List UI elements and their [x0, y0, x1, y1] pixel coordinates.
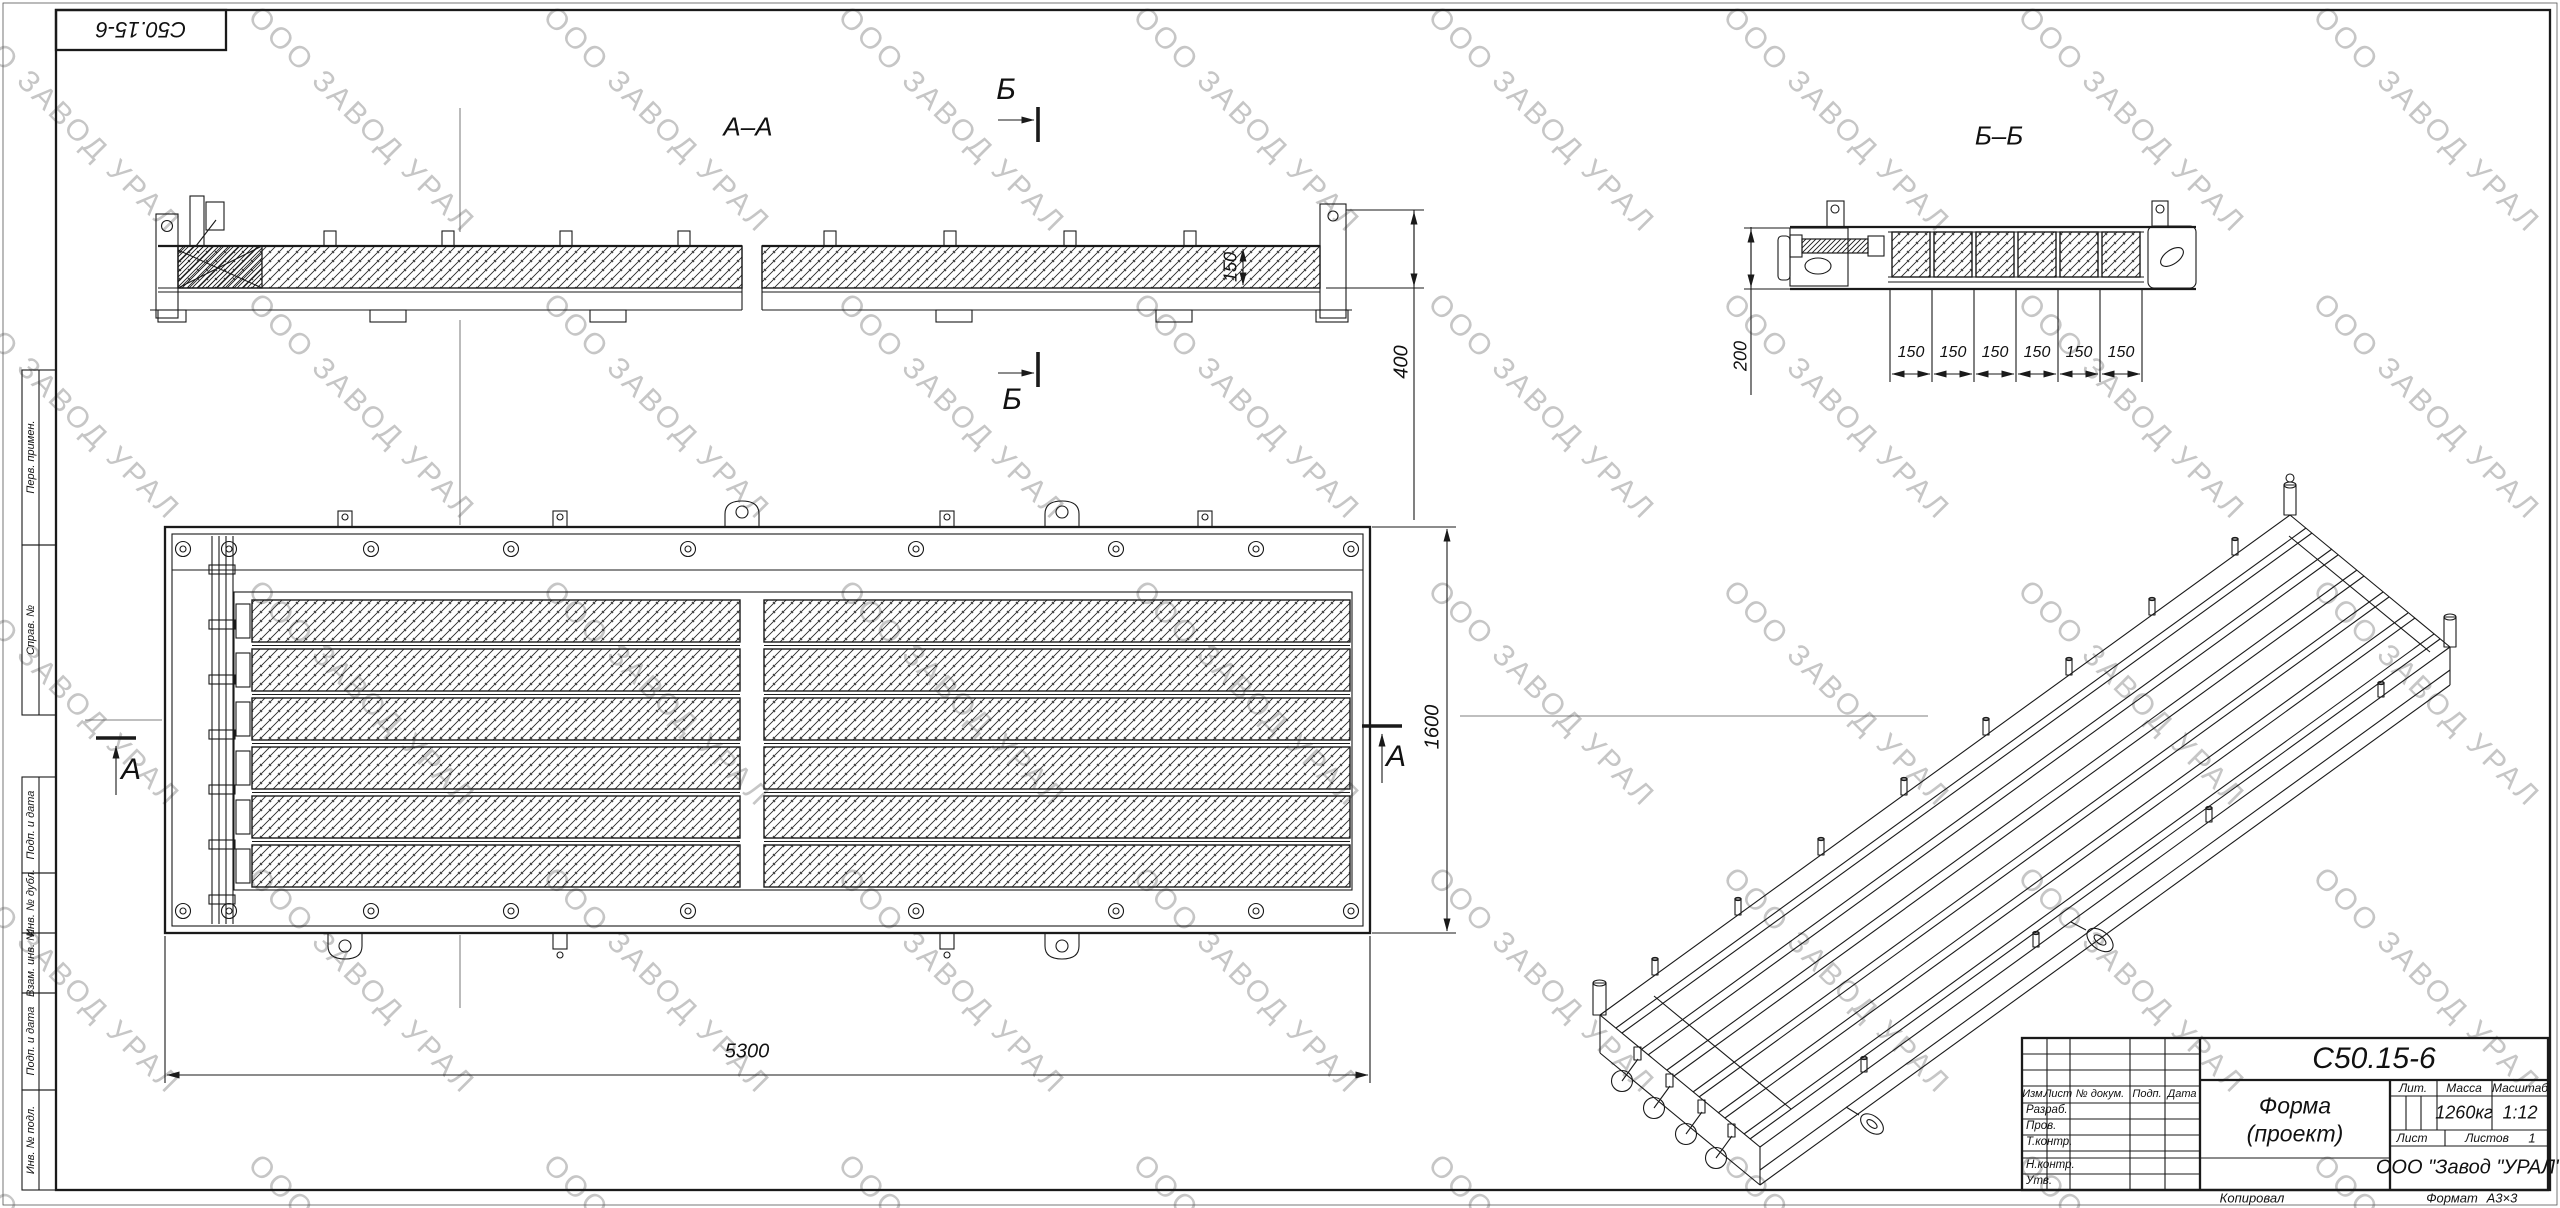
- tb-col-data: Дата: [2167, 1088, 2196, 1100]
- corner-stamp-number: С50.15-6: [96, 16, 187, 42]
- tb-row-razrab: Разраб.: [2026, 1104, 2068, 1116]
- dim-150-bb: 150: [1898, 344, 1925, 362]
- tb-mass-value: 1260кг: [2435, 1103, 2492, 1124]
- cut-letter-a-left: А: [121, 753, 141, 787]
- margin-label-vzam-inv: Взам. инв. №: [25, 929, 37, 997]
- margin-label-inv-dubl: Инв. № дубл.: [25, 869, 37, 937]
- dim-400: 400: [1391, 345, 1414, 378]
- format-label: Формат: [2426, 1191, 2478, 1206]
- tb-col-list: Лист: [2044, 1088, 2072, 1100]
- section-aa-label: А–А: [723, 112, 772, 143]
- tb-col-podp: Подп.: [2132, 1088, 2161, 1100]
- tb-company: ООО "Завод "УРАЛ": [2376, 1157, 2560, 1180]
- dim-150-bb: 150: [2024, 344, 2051, 362]
- dim-150-aa: 150: [1221, 252, 1242, 282]
- cut-letter-a-right: А: [1386, 740, 1406, 774]
- tb-col-izm: Изм.: [2022, 1088, 2045, 1100]
- cut-letter-b-top: Б: [996, 73, 1016, 107]
- tb-row-prov: Пров.: [2026, 1120, 2056, 1132]
- margin-label-podp-data-2: Подп. и дата: [25, 1007, 37, 1076]
- dim-200-bb: 200: [1731, 341, 1752, 371]
- tb-sheet-label: Лист: [2397, 1131, 2428, 1145]
- dim-150-bb: 150: [1982, 344, 2009, 362]
- dim-150-bb: 150: [1940, 344, 1967, 362]
- tb-sheets-value: 1: [2528, 1131, 2535, 1146]
- title-block-doc-number: С50.15-6: [2312, 1042, 2435, 1076]
- cut-letter-b-bottom: Б: [1002, 383, 1022, 417]
- tb-scale-value: 1:12: [2502, 1103, 2537, 1124]
- text-layer: С50.15-6 А–А Б–Б Б Б А А 5300 1600 400 1…: [0, 0, 2560, 1208]
- margin-label-sprav-no: Справ. №: [25, 605, 37, 655]
- format-value: А3×3: [2487, 1191, 2518, 1206]
- section-bb-label: Б–Б: [1975, 121, 2023, 152]
- tb-lit-label: Лит.: [2399, 1081, 2427, 1095]
- tb-row-tkontr: Т.контр.: [2026, 1136, 2072, 1148]
- dim-5300: 5300: [725, 1041, 770, 1064]
- dim-150-bb: 150: [2066, 344, 2093, 362]
- tb-scale-label: Масштаб: [2492, 1081, 2548, 1095]
- dim-150-bb: 150: [2108, 344, 2135, 362]
- title-block-name-line2: (проект): [2247, 1121, 2344, 1148]
- dim-1600: 1600: [1422, 705, 1445, 750]
- title-block-name-line1: Форма: [2259, 1093, 2331, 1120]
- tb-row-nkontr: Н.контр.: [2026, 1159, 2075, 1171]
- margin-label-inv-podl: Инв. № подл.: [25, 1106, 37, 1174]
- copied-by-label: Копировал: [2220, 1191, 2285, 1206]
- tb-mass-label: Масса: [2446, 1081, 2481, 1095]
- margin-label-podp-data-1: Подп. и дата: [25, 791, 37, 860]
- margin-label-perv-primen: Перв. примен.: [25, 420, 37, 493]
- tb-row-utv: Утв.: [2026, 1175, 2052, 1187]
- tb-sheets-label: Листов: [2465, 1131, 2509, 1145]
- drawing-sheet: ООО ЗАВОД УРАЛООО ЗАВОД УРАЛООО ЗАВОД УР…: [0, 0, 2560, 1208]
- tb-col-dokum: № докум.: [2076, 1088, 2124, 1100]
